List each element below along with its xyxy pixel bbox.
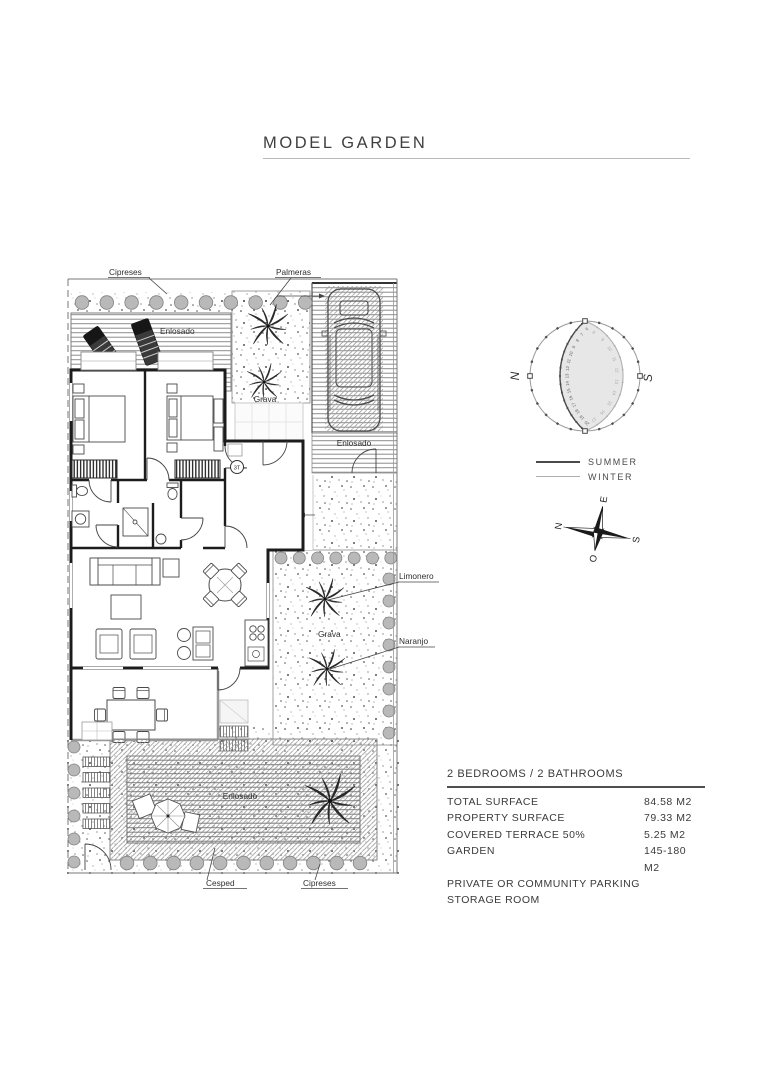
- shrub: [150, 296, 164, 310]
- sun-tick: [598, 428, 601, 431]
- specs-rows: TOTAL SURFACE84.58 M2PROPERTY SURFACE79.…: [447, 794, 705, 909]
- label-naranjo: Naranjo: [399, 636, 428, 646]
- summer-hour-tick: [561, 392, 563, 394]
- specs-rule: [447, 786, 705, 788]
- summer-hour-tick: [571, 414, 573, 416]
- summer-hour-tick: [581, 427, 583, 429]
- entry-canopy: [235, 403, 303, 441]
- spec-label: STORAGE ROOM: [447, 892, 644, 908]
- winter-hour-tick: [619, 356, 621, 358]
- spec-value: [644, 892, 705, 908]
- compass-star: [563, 501, 632, 556]
- summer-hour-tick: [563, 351, 565, 353]
- winter-hour-tick: [596, 327, 598, 329]
- sun-tick: [569, 322, 572, 325]
- summer-hour-tick: [561, 359, 563, 361]
- shrub: [330, 856, 344, 870]
- spec-row: COVERED TERRACE 50%5.25 M2: [447, 827, 705, 843]
- winter-hour-tick: [596, 424, 598, 426]
- sun-tick: [531, 360, 534, 363]
- label-grava-garden: Grava: [318, 629, 341, 639]
- winter-hour-tick: [622, 382, 624, 384]
- shrub: [100, 296, 114, 310]
- summer-hour-label: 13: [565, 373, 570, 378]
- floor-plan: 3T: [63, 263, 443, 895]
- summer-hour-tick: [560, 383, 562, 385]
- summer-hour-tick: [559, 375, 561, 377]
- winter-hour-tick: [614, 345, 616, 347]
- shrub: [283, 856, 297, 870]
- sun-tick: [637, 389, 640, 392]
- spec-row: STORAGE ROOM: [447, 892, 705, 908]
- winter-hour-tick: [606, 335, 608, 337]
- shrub: [249, 296, 263, 310]
- sun-south-label: S: [641, 374, 655, 382]
- summer-hour-tick: [571, 336, 573, 338]
- label-enlosado-drive: Enlosado: [337, 438, 372, 448]
- label-cipreses-bottom: Cipreses: [303, 878, 336, 888]
- shrub: [293, 552, 305, 564]
- sun-tick: [569, 428, 572, 431]
- shrub: [385, 552, 397, 564]
- page-title: MODEL GARDEN: [263, 134, 690, 153]
- shrub: [237, 856, 251, 870]
- entry-closet: [228, 444, 242, 456]
- legend-line: [536, 461, 580, 463]
- shrub: [68, 833, 80, 845]
- shrub: [330, 552, 342, 564]
- dining-table: [203, 563, 247, 607]
- shrub: [68, 741, 80, 753]
- shrub: [348, 552, 360, 564]
- label-cipreses-top: Cipreses: [109, 267, 142, 277]
- spec-row: TOTAL SURFACE84.58 M2: [447, 794, 705, 810]
- summer-hour-tick: [560, 367, 562, 369]
- compass-o-label: O: [588, 554, 600, 563]
- sun-tick: [583, 319, 588, 324]
- sun-tick: [598, 322, 601, 325]
- compass-s-label: S: [631, 536, 643, 544]
- summer-hour-tick: [575, 329, 577, 331]
- label-palmeras: Palmeras: [276, 267, 311, 277]
- entry-marker: 3T: [231, 461, 244, 474]
- winter-hour-tick: [606, 416, 608, 418]
- title-rule: [263, 158, 690, 159]
- shrub: [224, 296, 238, 310]
- winter-hour-tick: [619, 394, 621, 396]
- sun-legend: SUMMERWINTER: [536, 454, 638, 484]
- label-limonero: Limonero: [399, 571, 434, 581]
- shrub: [68, 787, 80, 799]
- legend-row: WINTER: [536, 469, 638, 484]
- compass-n-label: N: [553, 522, 565, 531]
- label-enlosado-bottom: Enlosado: [223, 791, 258, 801]
- spec-value: [644, 876, 705, 892]
- winter-hour-tick: [614, 405, 616, 407]
- title-block: MODEL GARDEN: [263, 134, 690, 159]
- legend-row: SUMMER: [536, 454, 638, 469]
- spec-label: PROPERTY SURFACE: [447, 810, 644, 826]
- label-cesped: Cesped: [206, 878, 235, 888]
- legend-line: [536, 476, 580, 477]
- shrub: [312, 552, 324, 564]
- shrub: [307, 856, 321, 870]
- plan-sheet: MODEL GARDEN: [0, 0, 763, 1080]
- sun-tick: [583, 429, 588, 434]
- summer-hour-tick: [563, 400, 565, 402]
- summer-hour-tick: [575, 421, 577, 423]
- shrub: [174, 296, 188, 310]
- spec-value: 84.58 M2: [644, 794, 705, 810]
- spec-value: 5.25 M2: [644, 827, 705, 843]
- shrub: [75, 296, 89, 310]
- shrub: [144, 856, 158, 870]
- shrub: [260, 856, 274, 870]
- shrub: [125, 296, 139, 310]
- legend-label: SUMMER: [588, 457, 638, 467]
- spec-label: TOTAL SURFACE: [447, 794, 644, 810]
- sun-north-label: N: [508, 371, 522, 380]
- shrub: [68, 856, 80, 868]
- summer-hour-tick: [581, 323, 583, 325]
- specs-header: 2 BEDROOMS / 2 BATHROOMS: [447, 768, 705, 786]
- spec-row: PROPERTY SURFACE79.33 M2: [447, 810, 705, 826]
- shrub: [120, 856, 134, 870]
- label-enlosado-top: Enlosado: [160, 326, 195, 336]
- sun-path-diagram: 6789101112131415161718192089101112131415…: [505, 298, 665, 456]
- spec-row: PRIVATE OR COMMUNITY PARKING: [447, 876, 705, 892]
- shrub: [298, 296, 312, 310]
- specs-panel: 2 BEDROOMS / 2 BATHROOMS TOTAL SURFACE84…: [447, 768, 705, 909]
- sun-tick: [531, 389, 534, 392]
- shrub: [68, 810, 80, 822]
- sun-tick: [637, 360, 640, 363]
- spec-label: GARDEN: [447, 843, 644, 876]
- shrub: [367, 552, 379, 564]
- spec-value: 79.33 M2: [644, 810, 705, 826]
- shrub: [275, 552, 287, 564]
- shrub: [199, 296, 213, 310]
- compass-e-label: E: [598, 496, 610, 504]
- compass-rose: N E S O: [545, 483, 655, 583]
- shrub: [213, 856, 227, 870]
- spec-label: PRIVATE OR COMMUNITY PARKING: [447, 876, 644, 892]
- shrub: [190, 856, 204, 870]
- winter-hour-tick: [622, 369, 624, 371]
- entry-marker-label: 3T: [234, 465, 241, 471]
- label-grava-top: Grava: [254, 394, 277, 404]
- legend-label: WINTER: [588, 472, 633, 482]
- summer-hour-tick: [567, 343, 569, 345]
- sun-tick: [528, 374, 533, 379]
- spec-row: GARDEN145-180 M2: [447, 843, 705, 876]
- shrub: [167, 856, 181, 870]
- summer-hour-tick: [567, 407, 569, 409]
- shrub: [68, 764, 80, 776]
- shrub: [353, 856, 367, 870]
- spec-label: COVERED TERRACE 50%: [447, 827, 644, 843]
- spec-value: 145-180 M2: [644, 843, 705, 876]
